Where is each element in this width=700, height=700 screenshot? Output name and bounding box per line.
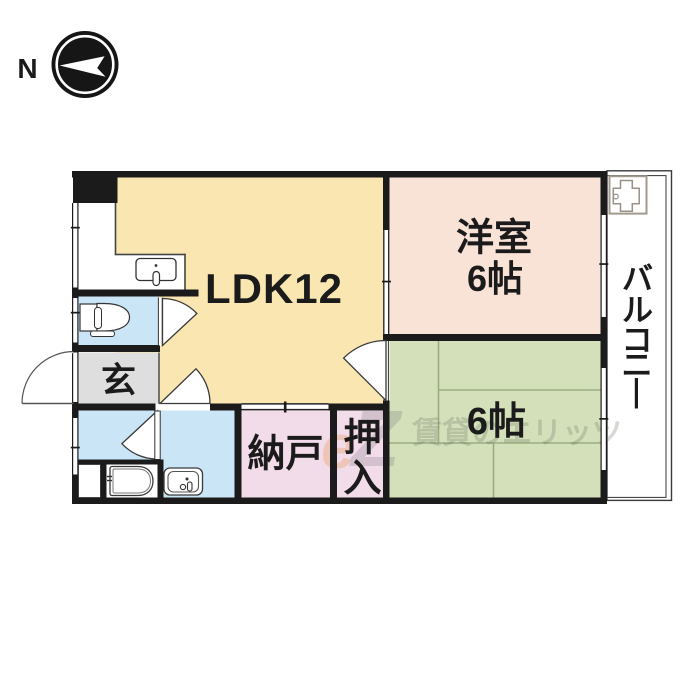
svg-text:洋室: 洋室	[456, 217, 532, 260]
svg-text:6帖: 6帖	[467, 258, 523, 299]
svg-text:LDK12: LDK12	[205, 265, 343, 312]
svg-text:納戸: 納戸	[247, 434, 323, 476]
svg-text:玄: 玄	[101, 362, 136, 401]
svg-text:N: N	[17, 53, 37, 84]
svg-text:押: 押	[343, 418, 381, 460]
svg-text:バ: バ	[622, 262, 653, 297]
svg-text:入: 入	[343, 458, 381, 500]
svg-text:6帖: 6帖	[467, 401, 526, 443]
svg-text:ニ: ニ	[622, 348, 653, 383]
